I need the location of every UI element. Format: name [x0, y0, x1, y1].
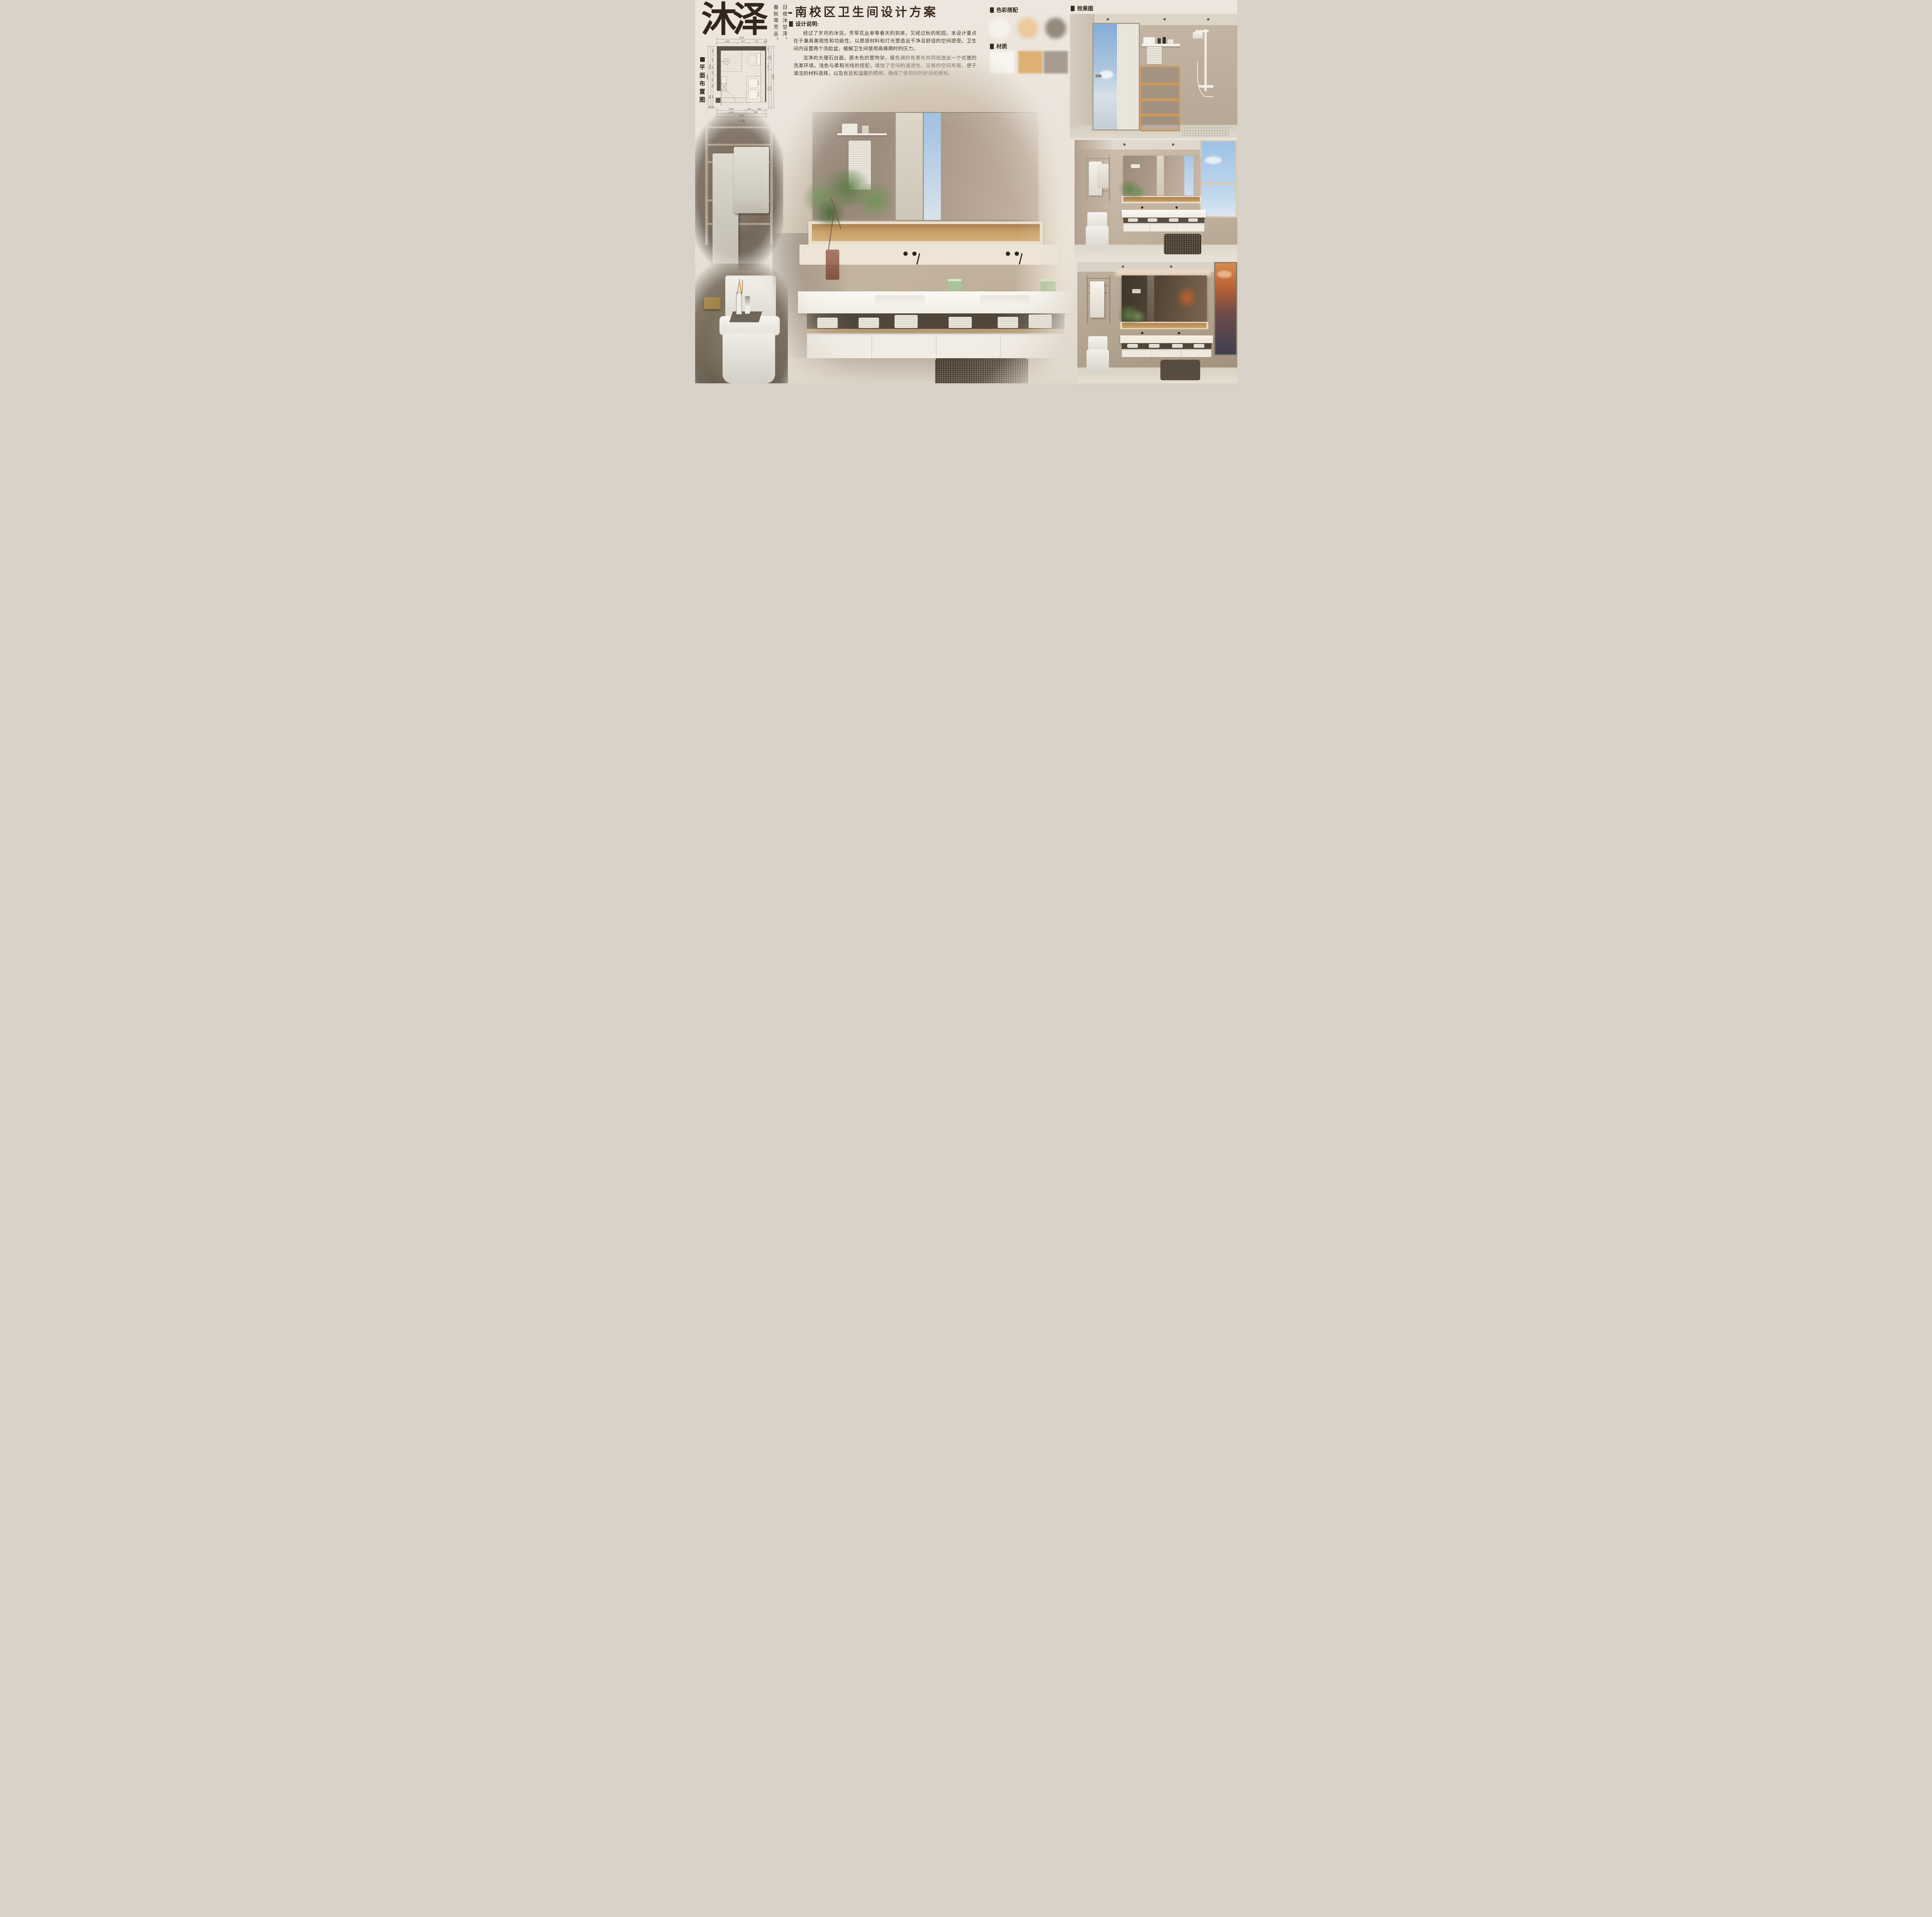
mirror-reflected-shelf: [837, 133, 887, 136]
mirror-reflected-sheer-curtain: [896, 113, 923, 219]
folded-towels: [1127, 344, 1138, 348]
svg-text:80: 80: [709, 106, 711, 108]
mirror-reflected-sheer: [1147, 276, 1154, 321]
plan-double-vanity: [747, 76, 761, 102]
plan-cabinet: [721, 77, 726, 90]
woven-basket: [1164, 234, 1201, 254]
towel-rack-rail: [1087, 276, 1088, 324]
mirror-reflected-towels: [1131, 164, 1140, 168]
svg-text:200: 200: [711, 71, 713, 74]
shower-valve: [1199, 85, 1214, 88]
svg-text:400: 400: [711, 49, 713, 52]
floor-plan-label: 平面布置图: [698, 64, 706, 105]
diffuser-bottle: [736, 292, 742, 315]
towel-shelf: [1122, 343, 1211, 349]
svg-text:2690: 2690: [706, 75, 709, 80]
renders-heading: 效果图: [1071, 5, 1094, 12]
svg-text:1370: 1370: [728, 108, 733, 111]
hanging-towel: [1097, 164, 1108, 188]
folded-towels: [949, 317, 972, 328]
plan-shower-area: [721, 51, 742, 72]
foliage: [850, 183, 899, 216]
wall-shelf: [1142, 44, 1180, 46]
svg-text:800: 800: [709, 95, 711, 99]
svg-text:1810: 1810: [709, 65, 711, 70]
brand-logo: 沐泽: [701, 0, 765, 39]
drawer-seam: [1177, 223, 1178, 231]
woven-basket: [935, 358, 1029, 383]
towel-rack-rail: [1109, 276, 1111, 324]
drawer-seam: [1181, 349, 1182, 357]
mirror-reflected-sheer: [1157, 156, 1164, 196]
faucet-valve: [1141, 206, 1143, 209]
svg-text:1020: 1020: [770, 55, 772, 60]
towel-rack-bar: [705, 126, 772, 128]
glass-vase: [826, 250, 839, 280]
page-title: -南校区卫生间设计方案: [788, 2, 938, 20]
floor-plan: 2350 1000 527 723 100 1370 330 650 1370 …: [705, 36, 778, 123]
svg-text:80: 80: [711, 106, 713, 108]
cloud: [1100, 70, 1113, 79]
svg-text:800: 800: [711, 95, 713, 98]
towel-shelf: [1123, 218, 1205, 223]
niche-interior: [1123, 197, 1200, 202]
faucet-valve: [1006, 252, 1010, 256]
folded-towels: [859, 318, 879, 328]
design-notes-heading: 设计说明:: [789, 20, 819, 28]
svg-text:527: 527: [742, 41, 745, 43]
drawer-seam: [1151, 349, 1152, 357]
svg-text:255: 255: [767, 48, 769, 51]
folded-towels: [998, 317, 1018, 328]
foliage: [811, 200, 848, 226]
drawer-seam: [936, 333, 937, 358]
sink-basin: [875, 295, 925, 307]
toilet-bowl: [1087, 349, 1109, 374]
plan-toilet: [747, 53, 760, 65]
palette-swatch-sand-beige: [1017, 18, 1038, 39]
folded-towels: [1128, 218, 1138, 222]
materials-heading-label: 材质: [997, 43, 1007, 50]
drawer-seam: [871, 333, 872, 358]
square-bullet-icon: [789, 21, 793, 27]
floor-plan-label-block: 平面布置图: [698, 57, 707, 105]
svg-text:400: 400: [711, 78, 713, 81]
folded-towels: [1149, 344, 1160, 348]
folded-towels: [1194, 344, 1204, 348]
shower-head: [1193, 32, 1203, 39]
green-plant: [1128, 186, 1148, 198]
faucet-valve: [912, 252, 917, 256]
vanity-countertop: [798, 291, 1074, 313]
faucet-valve: [1178, 332, 1180, 334]
green-plant: [1128, 311, 1148, 323]
vanity-drawers: [1122, 349, 1211, 357]
window-mullion: [1201, 182, 1235, 185]
drawer-seam: [1000, 333, 1001, 358]
vanity-countertop: [1122, 210, 1206, 218]
renders-heading-label: 效果图: [1077, 5, 1094, 12]
vanity-drawers: [807, 333, 1065, 358]
photo-toilet: [695, 264, 788, 383]
svg-text:723: 723: [754, 41, 758, 43]
shelf-board: [1141, 114, 1178, 117]
design-poster: 沐泽 日夜沐甘泽， 春秋等芳丛。 -南校区卫生间设计方案 设计说明: 经过了岁月…: [695, 0, 1237, 383]
faucet-valve: [1141, 332, 1143, 334]
svg-text:100: 100: [764, 41, 767, 43]
svg-text:260: 260: [711, 66, 713, 69]
svg-text:400: 400: [711, 58, 713, 61]
niche-interior: [1122, 323, 1207, 328]
bottle: [1163, 37, 1166, 44]
dropper-bottle: [745, 296, 750, 314]
toilet-paper-holder: [704, 297, 721, 309]
svg-text:1670: 1670: [767, 87, 769, 91]
side-wall: [1070, 14, 1095, 138]
toilet-bowl: [723, 333, 775, 383]
square-bullet-icon: [990, 7, 994, 13]
bottle: [1158, 38, 1161, 44]
folded-towels: [1169, 218, 1179, 222]
palette-heading-label: 色彩搭配: [997, 6, 1018, 14]
svg-text:255: 255: [767, 65, 769, 68]
tile-mat: [1182, 127, 1229, 136]
cloud: [1217, 270, 1232, 278]
palette-heading: 色彩搭配: [990, 6, 1018, 14]
mirror-reflected-bottle: [862, 126, 869, 133]
sheer-panel: [1117, 24, 1139, 130]
render-vanity-sunset: [1077, 262, 1237, 383]
cloud: [1205, 156, 1222, 164]
svg-text:150: 150: [711, 84, 713, 87]
towel-rack-rail: [1086, 156, 1087, 202]
faucet-valve: [903, 252, 908, 256]
folded-towels: [1029, 315, 1052, 328]
towel-rack-rail: [1109, 156, 1110, 202]
svg-text:330: 330: [747, 108, 751, 111]
render-shower-room: [1070, 14, 1237, 138]
sink-basin: [980, 295, 1029, 307]
hanging-towel: [734, 147, 769, 213]
towel-rack-bar: [1087, 278, 1111, 279]
palette-swatch-warm-taupe: [1045, 18, 1066, 39]
svg-text:1670: 1670: [770, 86, 772, 91]
towel-shelf: [807, 313, 1065, 333]
folded-towels: [1172, 344, 1183, 348]
palette-swatch-warm-white: [989, 18, 1010, 39]
shower-door: [1092, 23, 1140, 131]
shelf-board: [1141, 83, 1178, 86]
hero-render-double-vanity: [772, 49, 1074, 383]
mirror-reflected-sky: [924, 113, 941, 219]
downlight: [1107, 18, 1109, 20]
downlight: [1207, 18, 1209, 20]
svg-text:2350: 2350: [739, 37, 744, 39]
towel-stack: [1143, 37, 1155, 44]
mirror-reflected-sky: [1184, 156, 1194, 196]
towel-rack-bar: [1086, 158, 1110, 159]
folded-towels: [1188, 218, 1198, 222]
towel-rack-rail: [770, 122, 773, 245]
render-vanity-daylight: [1075, 140, 1237, 260]
mirror-reflected-towel-stack: [842, 124, 858, 133]
towel-rack-bar: [705, 144, 772, 146]
shelf-board: [1141, 98, 1178, 101]
svg-text:511: 511: [767, 56, 769, 59]
jar: [1168, 39, 1173, 44]
wood-shelf-board: [807, 329, 1065, 333]
square-bullet-icon: [700, 57, 705, 62]
square-bullet-icon: [1071, 6, 1075, 11]
niche-interior: [812, 224, 1040, 241]
wood-niche-shelf: [808, 221, 1043, 245]
faucet-valve: [1175, 206, 1178, 209]
mirror-reflected-sunset: [1178, 284, 1196, 311]
svg-text:1000: 1000: [724, 41, 730, 43]
design-notes-heading-label: 设计说明:: [796, 20, 819, 28]
drawer-seam: [1150, 223, 1151, 231]
cove-light-glow: [1116, 270, 1211, 276]
towel-rack-rail: [705, 122, 708, 245]
photo-towel-warmer: [695, 112, 783, 270]
materials-heading: 材质: [990, 43, 1007, 50]
window: [1200, 140, 1237, 218]
woven-basket: [1160, 360, 1201, 380]
window-sunset: [1214, 262, 1237, 356]
vanity-countertop: [1120, 335, 1213, 343]
square-bullet-icon: [990, 44, 994, 49]
svg-text:650: 650: [757, 108, 761, 111]
folded-towels: [895, 315, 918, 328]
hanging-towel: [1090, 281, 1104, 318]
floor: [772, 358, 1074, 383]
folded-towels: [817, 318, 838, 328]
folded-towels: [1148, 218, 1157, 222]
toilet-bowl: [1086, 226, 1109, 250]
design-notes-paragraph-1: 经过了岁月的沐浴，芳草花丛单等春天的到来，又经过秋的轮回。本设计重点在于兼具美观…: [794, 29, 977, 53]
mirror-reflected-towels: [1132, 289, 1141, 293]
hanging-towel: [1147, 47, 1162, 64]
door-handle: [1095, 75, 1102, 77]
toilet-tank: [1088, 336, 1107, 351]
toilet-tank: [1087, 212, 1107, 226]
wood-ladder-shelf: [1140, 66, 1180, 131]
vanity-drawers: [1123, 223, 1205, 231]
